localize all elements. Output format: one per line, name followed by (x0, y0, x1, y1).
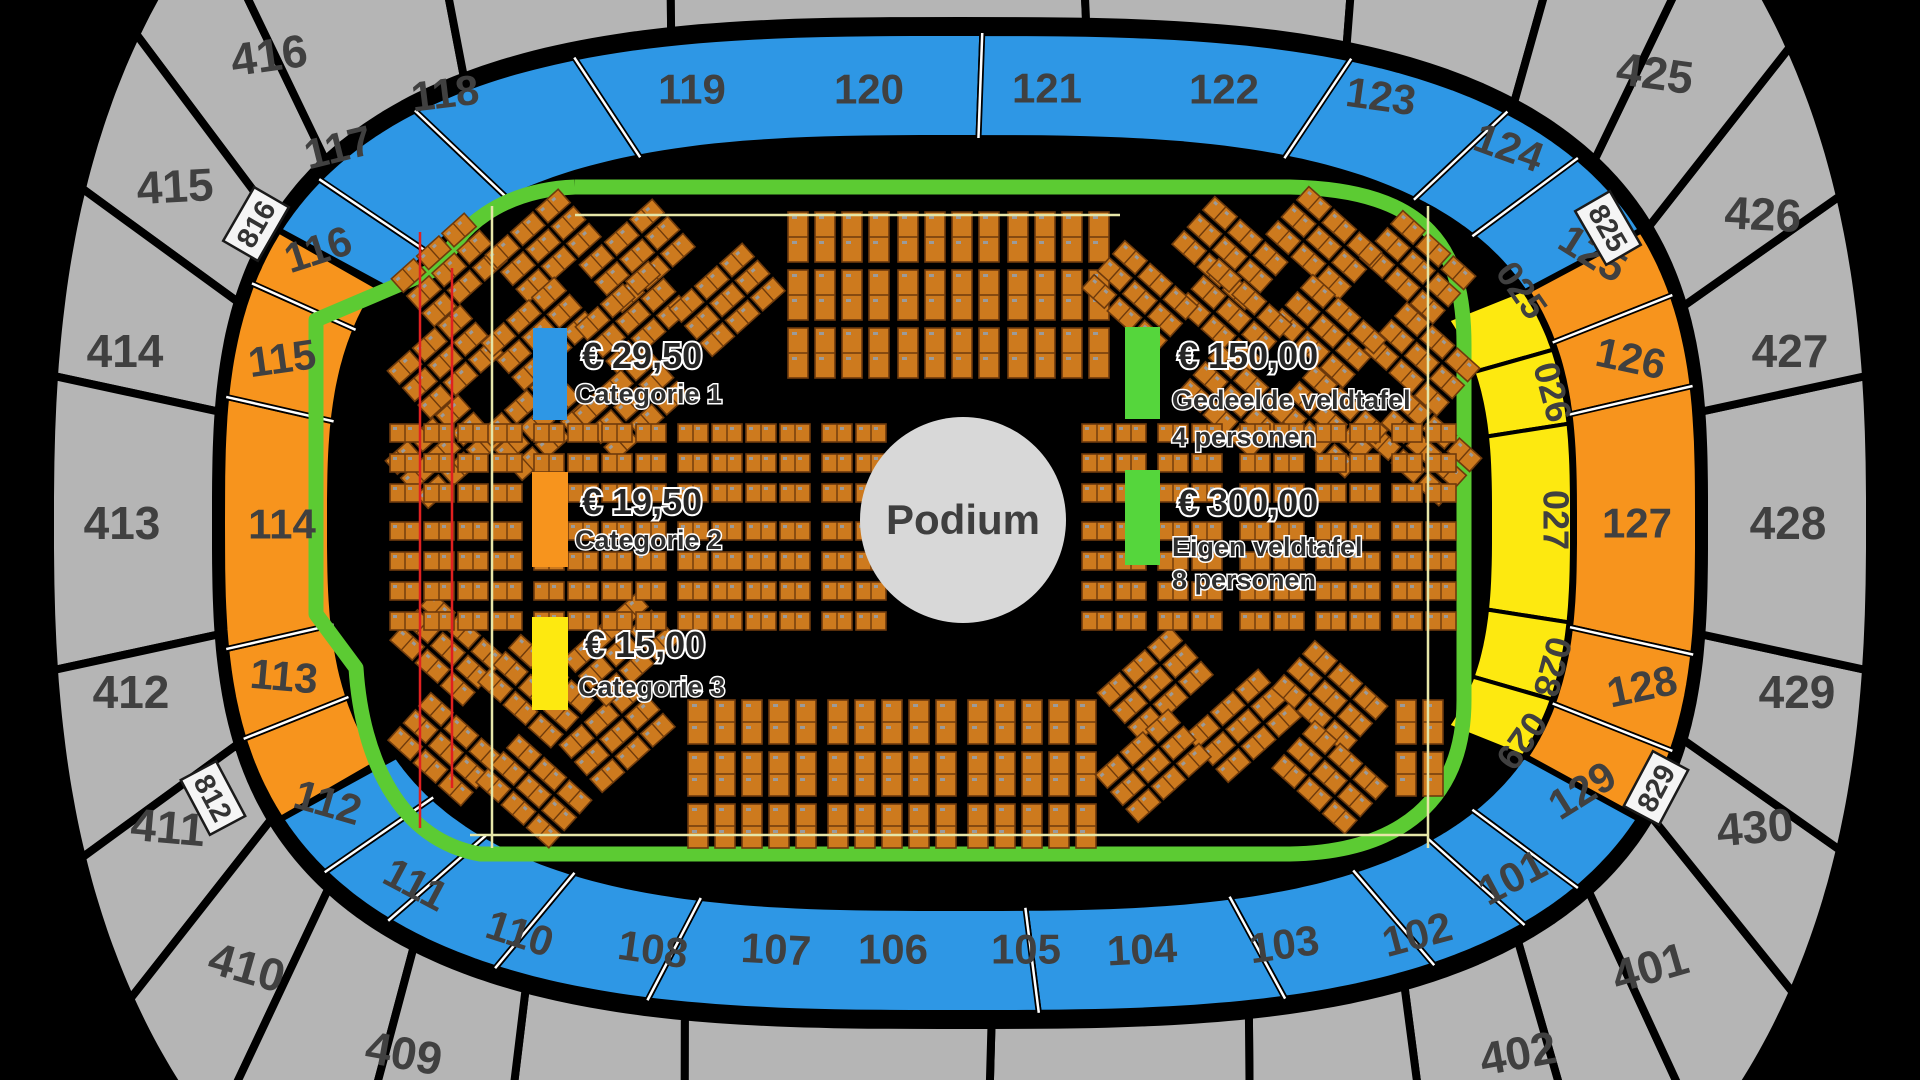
table[interactable] (1396, 700, 1416, 744)
table[interactable] (746, 522, 776, 540)
legend-name-gedeelde-veldtafel: Gedeelde veldtafel (1172, 385, 1411, 415)
table[interactable] (715, 804, 735, 848)
table[interactable] (869, 270, 889, 320)
table[interactable] (909, 752, 929, 796)
table[interactable] (1082, 552, 1112, 570)
legend-price-categorie-1: € 29,50 (582, 335, 702, 376)
table[interactable] (936, 752, 956, 796)
table[interactable] (712, 424, 742, 442)
section-label-118: 118 (409, 66, 482, 121)
table[interactable] (678, 582, 708, 600)
table[interactable] (636, 454, 666, 472)
table[interactable] (390, 484, 420, 502)
section-label-027: 027 (1535, 490, 1576, 550)
table[interactable] (1392, 454, 1422, 472)
table-cluster (387, 305, 503, 418)
section-label-120: 120 (834, 66, 904, 113)
table[interactable] (390, 522, 420, 540)
legend-name-categorie-1: Categorie 1 (575, 379, 722, 409)
table[interactable] (1350, 424, 1380, 442)
table[interactable] (424, 454, 454, 472)
table[interactable] (936, 700, 956, 744)
table[interactable] (1076, 752, 1096, 796)
table[interactable] (1316, 582, 1346, 600)
table[interactable] (1116, 582, 1146, 600)
table[interactable] (678, 424, 708, 442)
table[interactable] (424, 612, 454, 630)
table[interactable] (1392, 612, 1422, 630)
table[interactable] (1082, 484, 1112, 502)
table[interactable] (815, 270, 835, 320)
section-label-123: 123 (1343, 68, 1419, 124)
table[interactable] (424, 484, 454, 502)
table[interactable] (856, 612, 886, 630)
table[interactable] (712, 454, 742, 472)
table[interactable] (979, 328, 999, 378)
table[interactable] (742, 804, 762, 848)
table[interactable] (712, 484, 742, 502)
table[interactable] (1392, 484, 1422, 502)
table[interactable] (995, 700, 1015, 744)
seatmap-canvas: Podium € 29,50 Categorie 1 € 19,50 Categ… (0, 0, 1920, 1080)
table[interactable] (1423, 700, 1443, 744)
table[interactable] (746, 582, 776, 600)
section-label-122: 122 (1189, 66, 1259, 113)
table[interactable] (952, 270, 972, 320)
table[interactable] (636, 582, 666, 600)
table[interactable] (1082, 424, 1112, 442)
table[interactable] (909, 804, 929, 848)
table[interactable] (678, 454, 708, 472)
table[interactable] (1426, 424, 1456, 442)
table[interactable] (688, 700, 708, 744)
table[interactable] (1116, 454, 1146, 472)
table[interactable] (746, 424, 776, 442)
section-label-113: 113 (248, 650, 320, 703)
table[interactable] (1082, 522, 1112, 540)
table[interactable] (909, 700, 929, 744)
table[interactable] (968, 804, 988, 848)
table[interactable] (458, 454, 488, 472)
table[interactable] (898, 270, 918, 320)
table[interactable] (1426, 484, 1456, 502)
table[interactable] (1035, 212, 1055, 262)
table[interactable] (1116, 424, 1146, 442)
table[interactable] (822, 582, 852, 600)
legend-swatch-categorie-3 (532, 617, 568, 710)
table[interactable] (424, 552, 454, 570)
legend-price-categorie-2: € 19,50 (582, 481, 702, 522)
table[interactable] (1082, 612, 1112, 630)
table[interactable] (968, 700, 988, 744)
table[interactable] (1049, 752, 1069, 796)
table[interactable] (458, 612, 488, 630)
table[interactable] (1158, 454, 1188, 472)
table[interactable] (1350, 582, 1380, 600)
table[interactable] (688, 752, 708, 796)
table[interactable] (458, 424, 488, 442)
section-label-108: 108 (615, 921, 691, 977)
table[interactable] (746, 552, 776, 570)
section-label-104: 104 (1106, 924, 1179, 975)
table[interactable] (1274, 454, 1304, 472)
section-unlabeled (668, 0, 1087, 31)
table[interactable] (882, 700, 902, 744)
table[interactable] (492, 612, 522, 630)
table[interactable] (925, 270, 945, 320)
table[interactable] (424, 522, 454, 540)
section-label-429: 429 (1759, 666, 1836, 718)
table[interactable] (492, 424, 522, 442)
table[interactable] (746, 454, 776, 472)
table[interactable] (1426, 454, 1456, 472)
table[interactable] (1062, 328, 1082, 378)
table[interactable] (828, 700, 848, 744)
legend-swatch-categorie-2 (532, 472, 568, 567)
table[interactable] (856, 582, 886, 600)
table[interactable] (1082, 582, 1112, 600)
table[interactable] (492, 454, 522, 472)
section-label-121: 121 (1012, 65, 1082, 112)
table[interactable] (1423, 752, 1443, 796)
table[interactable] (492, 582, 522, 600)
table[interactable] (424, 424, 454, 442)
table[interactable] (712, 612, 742, 630)
table[interactable] (925, 212, 945, 262)
table[interactable] (952, 328, 972, 378)
legend-name-categorie-3: Categorie 3 (578, 672, 725, 702)
table[interactable] (780, 522, 810, 540)
table[interactable] (842, 212, 862, 262)
table[interactable] (1396, 752, 1416, 796)
section-unlabeled (981, 1015, 1253, 1080)
section-label-413: 413 (84, 497, 161, 549)
legend-price-categorie-3: € 15,00 (585, 624, 705, 665)
table[interactable] (390, 454, 420, 472)
table[interactable] (712, 582, 742, 600)
table[interactable] (742, 700, 762, 744)
table[interactable] (636, 424, 666, 442)
table[interactable] (492, 552, 522, 570)
table[interactable] (842, 328, 862, 378)
section-label-414: 414 (87, 325, 164, 377)
table[interactable] (769, 752, 789, 796)
section-label-106: 106 (858, 926, 928, 973)
table[interactable] (1240, 612, 1270, 630)
table[interactable] (936, 804, 956, 848)
table[interactable] (815, 328, 835, 378)
table[interactable] (568, 582, 598, 600)
table[interactable] (898, 212, 918, 262)
table[interactable] (492, 484, 522, 502)
table[interactable] (855, 752, 875, 796)
table[interactable] (1116, 612, 1146, 630)
table[interactable] (1274, 612, 1304, 630)
table[interactable] (1158, 612, 1188, 630)
table[interactable] (458, 552, 488, 570)
table[interactable] (746, 484, 776, 502)
table[interactable] (1089, 328, 1109, 378)
section-label-415: 415 (135, 158, 214, 214)
table[interactable] (1350, 484, 1380, 502)
table[interactable] (882, 804, 902, 848)
table[interactable] (1022, 752, 1042, 796)
table-cluster (1095, 709, 1211, 822)
table[interactable] (1426, 552, 1456, 570)
section-label-103: 103 (1246, 916, 1322, 972)
section-label-427: 427 (1752, 325, 1829, 377)
table[interactable] (968, 752, 988, 796)
table[interactable] (788, 212, 808, 262)
table[interactable] (780, 582, 810, 600)
section-label-127: 127 (1602, 500, 1672, 547)
table[interactable] (979, 212, 999, 262)
table[interactable] (534, 454, 564, 472)
table[interactable] (869, 212, 889, 262)
table[interactable] (822, 552, 852, 570)
section-label-412: 412 (93, 666, 170, 718)
table[interactable] (869, 328, 889, 378)
table[interactable] (390, 612, 420, 630)
section-label-105: 105 (991, 926, 1061, 973)
table[interactable] (1240, 454, 1270, 472)
table[interactable] (780, 454, 810, 472)
table-cluster (1172, 197, 1288, 310)
table[interactable] (746, 612, 776, 630)
legend-name-eigen-veldtafel: Eigen veldtafel (1172, 532, 1363, 562)
table[interactable] (534, 424, 564, 442)
table[interactable] (602, 582, 632, 600)
section-label-425: 425 (1613, 42, 1696, 104)
table[interactable] (568, 454, 598, 472)
table[interactable] (1008, 328, 1028, 378)
table[interactable] (822, 484, 852, 502)
table[interactable] (855, 700, 875, 744)
table[interactable] (424, 582, 454, 600)
table[interactable] (688, 804, 708, 848)
table[interactable] (492, 522, 522, 540)
table[interactable] (815, 212, 835, 262)
table[interactable] (1022, 804, 1042, 848)
section-120[interactable] (574, 33, 982, 157)
table[interactable] (952, 212, 972, 262)
table[interactable] (1316, 454, 1346, 472)
table[interactable] (1192, 612, 1222, 630)
table[interactable] (780, 612, 810, 630)
table[interactable] (925, 328, 945, 378)
table[interactable] (1089, 212, 1109, 262)
legend-swatch-gedeelde-veldtafel (1125, 327, 1160, 419)
table[interactable] (1082, 454, 1112, 472)
table[interactable] (1392, 582, 1422, 600)
table[interactable] (1076, 804, 1096, 848)
section-label-426: 426 (1723, 186, 1802, 242)
section-label-428: 428 (1750, 497, 1827, 549)
legend-swatch-eigen-veldtafel (1125, 470, 1160, 565)
table-cluster (579, 199, 695, 312)
table[interactable] (788, 328, 808, 378)
table[interactable] (534, 582, 564, 600)
table[interactable] (458, 522, 488, 540)
legend-price-gedeelde-veldtafel: € 150,00 (1178, 335, 1318, 376)
table[interactable] (1316, 612, 1346, 630)
legend-sub-eigen-veldtafel: 8 personen (1172, 565, 1316, 595)
legend-name-categorie-2: Categorie 2 (575, 525, 722, 555)
table[interactable] (788, 270, 808, 320)
table[interactable] (390, 552, 420, 570)
table[interactable] (822, 522, 852, 540)
table[interactable] (856, 424, 886, 442)
table[interactable] (1192, 454, 1222, 472)
section-label-114: 114 (248, 501, 316, 548)
table[interactable] (1049, 700, 1069, 744)
table[interactable] (1392, 424, 1422, 442)
section-label-430: 430 (1715, 798, 1796, 856)
section-label-115: 115 (245, 330, 319, 386)
table[interactable] (1022, 700, 1042, 744)
table[interactable] (715, 700, 735, 744)
legend-price-eigen-veldtafel: € 300,00 (1178, 482, 1318, 523)
table[interactable] (1008, 270, 1028, 320)
table[interactable] (780, 484, 810, 502)
table[interactable] (898, 328, 918, 378)
table[interactable] (390, 424, 420, 442)
table[interactable] (828, 804, 848, 848)
table[interactable] (822, 424, 852, 442)
table[interactable] (1426, 522, 1456, 540)
table[interactable] (796, 700, 816, 744)
table[interactable] (390, 582, 420, 600)
table[interactable] (822, 454, 852, 472)
table[interactable] (1350, 454, 1380, 472)
table[interactable] (1316, 484, 1346, 502)
legend-swatch-categorie-1 (533, 328, 567, 420)
table[interactable] (602, 424, 632, 442)
table[interactable] (828, 752, 848, 796)
table[interactable] (979, 270, 999, 320)
table[interactable] (855, 804, 875, 848)
table[interactable] (769, 804, 789, 848)
table[interactable] (780, 552, 810, 570)
table[interactable] (1062, 212, 1082, 262)
table[interactable] (602, 454, 632, 472)
table[interactable] (796, 804, 816, 848)
table[interactable] (568, 424, 598, 442)
table[interactable] (796, 752, 816, 796)
section-label-119: 119 (658, 66, 726, 113)
table[interactable] (1392, 522, 1422, 540)
table[interactable] (1426, 612, 1456, 630)
table[interactable] (458, 484, 488, 502)
legend-sub-gedeelde-veldtafel: 4 personen (1172, 422, 1316, 452)
table[interactable] (1049, 804, 1069, 848)
table[interactable] (1035, 270, 1055, 320)
table[interactable] (715, 752, 735, 796)
podium: Podium (860, 417, 1066, 623)
table[interactable] (822, 612, 852, 630)
table[interactable] (769, 700, 789, 744)
table[interactable] (882, 752, 902, 796)
table[interactable] (458, 582, 488, 600)
table[interactable] (1392, 552, 1422, 570)
table[interactable] (1035, 328, 1055, 378)
table[interactable] (995, 752, 1015, 796)
table[interactable] (1008, 212, 1028, 262)
table[interactable] (742, 752, 762, 796)
table[interactable] (1426, 582, 1456, 600)
section-label-107: 107 (740, 924, 812, 975)
table[interactable] (1316, 424, 1346, 442)
table[interactable] (842, 270, 862, 320)
section-label-416: 416 (227, 24, 310, 86)
table[interactable] (1350, 612, 1380, 630)
section-unlabeled (684, 1016, 991, 1080)
table[interactable] (1062, 270, 1082, 320)
section-106[interactable] (647, 898, 1038, 1013)
table-cluster (1272, 721, 1388, 834)
table[interactable] (780, 424, 810, 442)
table[interactable] (1076, 700, 1096, 744)
table[interactable] (995, 804, 1015, 848)
podium-label: Podium (886, 496, 1040, 543)
arena-seatmap: Podium € 29,50 Categorie 1 € 19,50 Categ… (0, 0, 1920, 1080)
